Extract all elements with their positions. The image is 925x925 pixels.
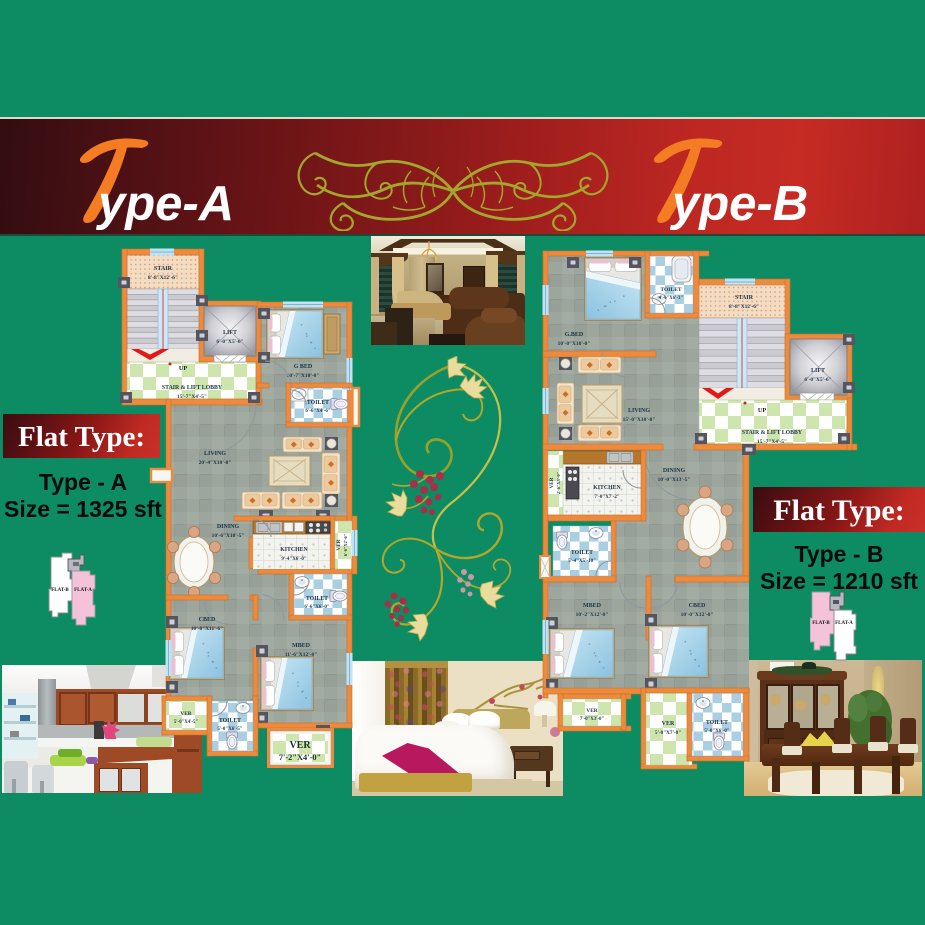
svg-text:VER: VER [336,539,342,550]
svg-text:KITCHEN: KITCHEN [280,547,308,553]
svg-text:4'-6"X6'-3": 4'-6"X6'-3" [659,296,684,301]
svg-text:6'-0"X5'-6": 6'-0"X5'-6" [216,339,243,345]
svg-text:STAIR: STAIR [154,266,173,272]
svg-text:10'-0"X12'-0": 10'-0"X12'-0" [681,612,714,618]
svg-text:CBED: CBED [689,603,706,609]
svg-text:10'-7"X10'-0": 10'-7"X10'-0" [287,373,320,379]
svg-text:MBED: MBED [292,643,311,649]
svg-text:VER: VER [586,708,597,714]
svg-text:TOILET: TOILET [306,596,328,602]
svg-text:5'-0"X7'-0": 5'-0"X7'-0" [655,730,681,736]
svg-text:LIVING: LIVING [204,451,226,457]
svg-text:6'-0"X5'-6": 6'-0"X5'-6" [804,377,831,383]
svg-text:LIVING: LIVING [628,408,650,414]
svg-text:5'-0"X4'-5": 5'-0"X4'-5" [174,720,199,725]
svg-text:TOILET: TOILET [571,550,593,556]
svg-text:8'-8"X12'-6": 8'-8"X12'-6" [148,275,178,281]
svg-text:VER: VER [662,721,675,727]
svg-text:DINING: DINING [663,468,686,474]
svg-text:7'-0"X3'-0": 7'-0"X3'-0" [580,717,605,722]
svg-text:7'-0"X7'-2": 7'-0"X7'-2" [594,495,619,500]
svg-text:7'-2"X4'-0": 7'-2"X4'-0" [279,753,321,762]
svg-text:TOILET: TOILET [307,400,329,406]
svg-text:TOILET: TOILET [706,720,728,726]
svg-text:10'-0"X10'-0": 10'-0"X10'-0" [558,341,591,347]
svg-text:G.BED: G.BED [565,332,584,338]
svg-text:6'-6"X4'-6": 6'-6"X4'-6" [305,409,330,414]
svg-text:G BED: G BED [294,364,313,370]
svg-text:KITCHEN: KITCHEN [593,485,621,491]
svg-text:VER: VER [180,711,191,717]
svg-text:10'-0"X13'-5": 10'-0"X13'-5" [658,477,691,483]
svg-text:LIFT: LIFT [223,330,237,336]
svg-text:6'-6"X6'-0": 6'-6"X6'-0" [304,605,329,610]
svg-text:VER: VER [289,740,311,751]
svg-text:6'-6"X2'-6": 6'-6"X2'-6" [343,534,348,556]
svg-text:STAIR & LIFT LOBBY: STAIR & LIFT LOBBY [742,430,803,436]
svg-text:5'-4"X5'-10": 5'-4"X5'-10" [568,559,596,564]
svg-text:TOILET: TOILET [660,287,682,293]
svg-text:LIFT: LIFT [811,368,825,374]
svg-text:10'-6"X10'-5": 10'-6"X10'-5" [212,533,245,539]
svg-text:VER: VER [549,477,555,488]
svg-text:20'-4"X10'-0": 20'-4"X10'-0" [199,460,232,466]
svg-text:10'-0"X11'-6": 10'-0"X11'-6" [191,626,223,632]
svg-text:UP: UP [758,407,766,414]
svg-text:STAIR: STAIR [735,295,754,301]
svg-text:DINING: DINING [217,524,240,530]
svg-text:11'-6"X12'-0": 11'-6"X12'-0" [285,652,317,658]
svg-text:9'-4"X6'-0": 9'-4"X6'-0" [281,557,306,562]
svg-text:10'-2"X12'-0": 10'-2"X12'-0" [576,612,609,618]
svg-text:8'-8"X12'-6": 8'-8"X12'-6" [729,304,759,310]
svg-text:MBED: MBED [583,603,602,609]
svg-text:2'-6"X5'-0": 2'-6"X5'-0" [556,472,561,494]
svg-text:STAIR & LIFT LOBBY: STAIR & LIFT LOBBY [162,385,223,391]
svg-text:UP: UP [179,365,187,372]
svg-text:15'-0"X10'-0": 15'-0"X10'-0" [623,417,656,423]
svg-text:TOILET: TOILET [219,718,241,724]
svg-text:5'-0"X6'-0": 5'-0"X6'-0" [704,729,729,734]
svg-text:CBED: CBED [199,617,216,623]
svg-text:5'-0"X6'-5": 5'-0"X6'-5" [217,727,242,732]
